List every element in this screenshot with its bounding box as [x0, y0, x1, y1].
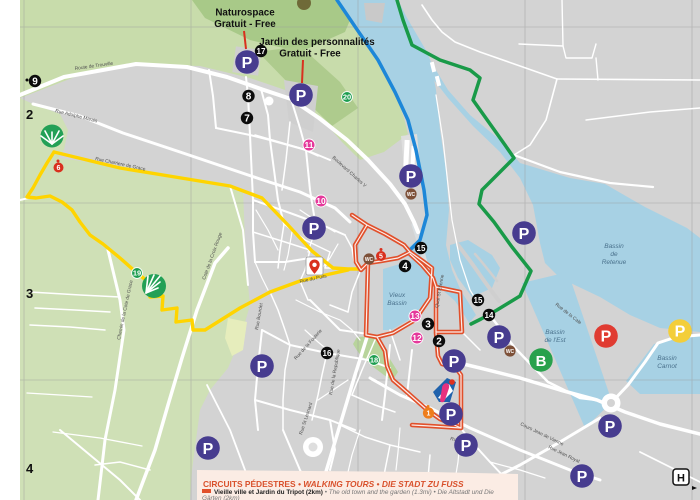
svg-text:13: 13 — [410, 311, 420, 321]
svg-text:18: 18 — [370, 356, 378, 365]
svg-text:P: P — [296, 88, 307, 105]
svg-text:4: 4 — [402, 262, 408, 273]
svg-text:Gärten (2km): Gärten (2km) — [202, 495, 240, 500]
svg-text:P: P — [203, 441, 214, 458]
svg-text:de: de — [610, 251, 618, 258]
svg-text:Jardin des personnalités: Jardin des personnalités — [259, 37, 375, 48]
svg-text:12: 12 — [412, 333, 422, 343]
svg-text:15: 15 — [474, 296, 483, 305]
svg-text:19: 19 — [133, 269, 141, 278]
svg-text:P: P — [449, 354, 460, 371]
svg-text:3: 3 — [425, 320, 431, 331]
svg-text:P: P — [257, 359, 268, 376]
svg-text:WC: WC — [506, 349, 515, 355]
svg-text:P: P — [242, 55, 253, 72]
svg-text:P: P — [675, 324, 686, 341]
svg-text:WC: WC — [365, 257, 374, 263]
svg-text:14: 14 — [485, 311, 494, 320]
svg-text:Bassin: Bassin — [387, 300, 407, 307]
svg-text:7: 7 — [244, 114, 250, 125]
svg-text:H: H — [677, 473, 685, 485]
svg-text:Vieux: Vieux — [389, 292, 406, 299]
svg-text:P: P — [605, 419, 616, 436]
svg-text:CIRCUITS PÉDESTRES • WALKING T: CIRCUITS PÉDESTRES • WALKING TOURS • DIE… — [203, 478, 464, 489]
svg-text:Bassin: Bassin — [604, 243, 624, 250]
svg-text:Vieille ville et Jardin du Tri: Vieille ville et Jardin du Tripot (2km) … — [214, 489, 494, 496]
svg-text:Gratuit - Free: Gratuit - Free — [214, 19, 276, 30]
svg-text:6: 6 — [57, 165, 61, 172]
svg-text:de l'Est: de l'Est — [544, 337, 566, 344]
svg-text:Carnot: Carnot — [657, 363, 678, 370]
svg-text:2: 2 — [26, 107, 33, 122]
svg-text:10: 10 — [316, 196, 326, 206]
svg-text:Naturospace: Naturospace — [215, 8, 275, 19]
svg-text:3: 3 — [26, 286, 33, 301]
svg-text:17: 17 — [257, 47, 266, 56]
svg-text:8: 8 — [246, 92, 252, 103]
svg-text:15: 15 — [417, 244, 426, 253]
svg-text:P: P — [577, 469, 588, 486]
svg-text:P: P — [601, 329, 612, 346]
svg-text:16: 16 — [323, 349, 332, 358]
svg-text:20: 20 — [343, 93, 351, 102]
svg-text:5: 5 — [379, 254, 383, 261]
svg-text:WC: WC — [407, 192, 416, 198]
svg-text:Bassin: Bassin — [657, 355, 677, 362]
svg-text:P: P — [406, 169, 417, 186]
svg-text:P: P — [446, 407, 457, 424]
svg-text:Retenue: Retenue — [602, 259, 627, 266]
svg-text:11: 11 — [305, 140, 314, 150]
svg-text:1: 1 — [427, 411, 431, 418]
svg-text:Bassin: Bassin — [545, 329, 565, 336]
svg-text:P: P — [309, 221, 320, 238]
svg-text:B: B — [536, 353, 547, 370]
svg-text:P: P — [461, 438, 472, 455]
svg-text:2: 2 — [436, 337, 442, 348]
svg-text:Gratuit - Free: Gratuit - Free — [279, 49, 341, 60]
svg-text:P: P — [494, 330, 505, 347]
svg-text:9: 9 — [32, 77, 38, 88]
svg-text:P: P — [519, 226, 530, 243]
svg-text:4: 4 — [26, 461, 34, 476]
